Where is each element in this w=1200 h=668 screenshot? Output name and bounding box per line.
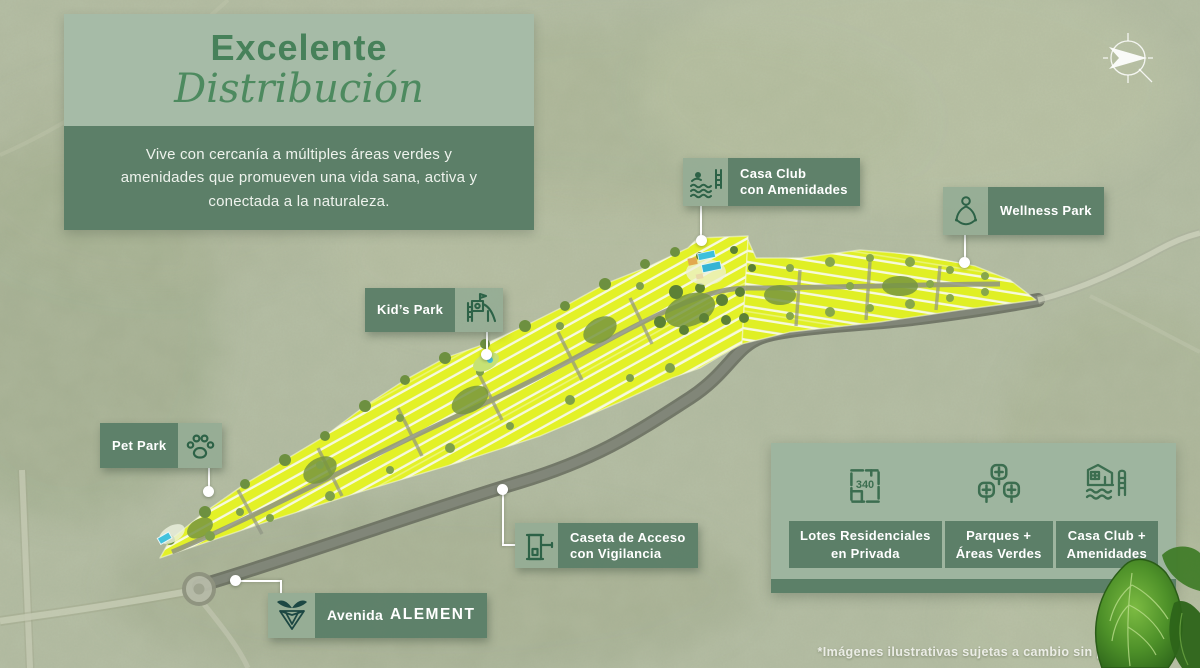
leader-caseta-v	[502, 494, 504, 546]
label-line: Kid’s Park	[377, 302, 443, 318]
legend-line: Parques +	[956, 527, 1042, 545]
clubhouse-pool-icon	[1082, 459, 1132, 509]
leader-casa-club	[700, 206, 702, 238]
leader-dot-caseta	[497, 484, 508, 495]
description-panel: Vive con cercanía a múltiples áreas verd…	[64, 126, 534, 230]
alement-logo-icon	[268, 593, 315, 638]
label-caseta-text: Caseta de Acceso con Vigilancia	[558, 523, 698, 568]
label-caseta: Caseta de Acceso con Vigilancia	[515, 523, 698, 568]
page-subtitle: Distribución	[174, 68, 424, 110]
legend-tag-parques: Parques + Áreas Verdes	[945, 521, 1053, 568]
label-line: con Amenidades	[740, 182, 848, 198]
leader-dot-casa-club	[696, 235, 707, 246]
header-panel: Excelente Distribución Vive con cercanía…	[64, 14, 534, 230]
label-kids-text: Kid’s Park	[365, 288, 455, 332]
label-pet-text: Pet Park	[100, 423, 178, 468]
label-line: Casa Club	[740, 166, 848, 182]
label-line: Caseta de Acceso	[570, 530, 686, 546]
leader-pet-park	[208, 468, 210, 488]
legend-line: en Privada	[800, 545, 931, 563]
label-pet-park: Pet Park	[100, 423, 222, 468]
legend-line: Áreas Verdes	[956, 545, 1042, 563]
legend-item-parques: Parques + Áreas Verdes	[945, 459, 1053, 568]
leader-avenida-v	[280, 580, 282, 594]
label-line: Pet Park	[112, 438, 166, 454]
avenida-name: ALEMENT	[390, 606, 475, 625]
label-wellness-text: Wellness Park	[988, 187, 1104, 235]
leader-avenida-h	[240, 580, 282, 582]
leader-caseta-h	[502, 544, 516, 546]
lot-size-value: 340	[856, 479, 874, 491]
label-casa-club-text: Casa Club con Amenidades	[728, 158, 860, 206]
leader-dot-kids-park	[481, 349, 492, 360]
title-panel: Excelente Distribución	[64, 14, 534, 126]
leader-dot-avenida	[230, 575, 241, 586]
pool-swimmer-icon	[683, 158, 728, 206]
label-casa-club: Casa Club con Amenidades	[683, 158, 860, 206]
playground-slide-icon	[455, 288, 503, 332]
label-wellness-park: Wellness Park	[943, 187, 1104, 235]
leader-dot-wellness	[959, 257, 970, 268]
leaf-decoration	[1070, 543, 1200, 668]
label-line: con Vigilancia	[570, 546, 686, 562]
label-kids-park: Kid’s Park	[365, 288, 503, 332]
guard-booth-icon	[515, 523, 558, 568]
legend-item-lotes: 340 Lotes Residenciales en Privada	[789, 459, 942, 568]
leader-dot-pet-park	[203, 486, 214, 497]
legend-line: Lotes Residenciales	[800, 527, 931, 545]
legend-tag-lotes: Lotes Residenciales en Privada	[789, 521, 942, 568]
lot-plan-icon: 340	[842, 459, 888, 509]
page-title: Excelente	[210, 30, 387, 66]
label-line: Wellness Park	[1000, 203, 1092, 219]
legend-line: Casa Club +	[1067, 527, 1147, 545]
trees-icon	[975, 459, 1023, 509]
meditation-icon	[943, 187, 988, 235]
description-text: Vive con cercanía a múltiples áreas verd…	[106, 143, 492, 213]
label-avenida: Avenida ALEMENT	[268, 593, 487, 638]
paw-icon	[178, 423, 222, 468]
label-avenida-text: Avenida ALEMENT	[315, 593, 487, 638]
compass-icon	[1100, 30, 1156, 86]
avenida-prefix: Avenida	[327, 607, 383, 624]
